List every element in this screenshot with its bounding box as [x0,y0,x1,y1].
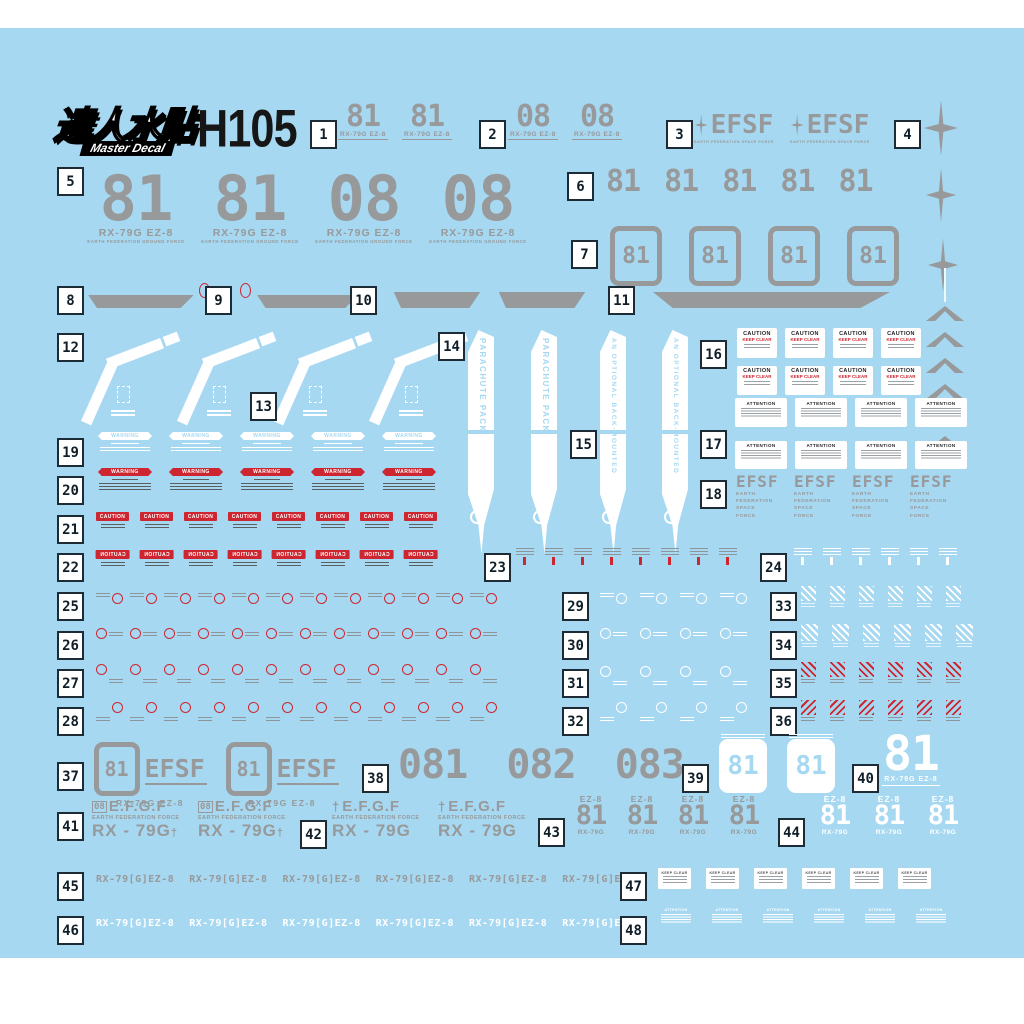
cross-icon: † [332,799,339,814]
detail-line [921,450,961,451]
section-34-decals [800,624,973,644]
circle-callout [96,588,126,604]
caution-card: CAUTION KEEP CLEAR [881,366,921,396]
decal-number: 81 [928,804,959,829]
section-25-decals [96,588,500,604]
detail-line [347,679,361,680]
brand-english: Master Decal [79,141,175,156]
circle-marker-icon [334,664,345,675]
attention-card: ATTENTION [915,441,967,470]
caution-card: CAUTION KEEP CLEAR [833,366,873,396]
efsf-line: EARTH [910,491,930,498]
section-23-decals [514,548,738,565]
circle-callout [436,628,466,639]
micro-label-red-tick [572,548,593,565]
decal-ez8-81: EZ-8 81 RX-79G [723,794,765,836]
attention-title: ATTENTION [818,908,841,912]
section-42-number: 42 [300,820,327,849]
circle-callout [402,588,432,604]
detail-line [888,381,914,382]
decal-number: 81 [410,103,444,131]
section-24-number: 24 [760,553,787,582]
section-16-number: 16 [700,340,727,369]
rx79g-text: RX - 79G [92,821,171,840]
detail-line [177,679,191,680]
detail-line [861,408,901,409]
section-1-number: 1 [310,120,337,149]
trapezoid-stripe [648,292,895,308]
detail-line [921,408,961,409]
rx79g-text: RX-79G [822,829,848,836]
circle-callout-white [680,666,712,687]
detail-line [177,361,214,426]
detail-line [721,734,765,735]
caution-tag-mirrored: CAUTION [272,550,305,563]
section-32-number: 32 [562,707,589,736]
detail-line [182,443,210,444]
circle-callout [334,628,364,639]
section-21-decals: CAUTION CAUTION CAUTION CAUTION CAUTION … [96,512,437,525]
section-18-decals: EFSF EARTH FEDERATION SPACE FORCE EFSF E… [736,472,954,520]
decal-number: 81 [576,804,607,829]
circle-marker-icon [616,593,627,604]
hatch-square-red [829,700,845,718]
decal-81-large: 81 RX-79G EZ-8 EARTH FEDERATION GROUND F… [84,170,188,244]
detail-line [170,483,222,484]
decal-code: RX-79G EZ-8 [510,131,556,138]
section-15-number: 15 [570,430,597,459]
efsf-text: EFSF [910,472,953,491]
hatch-pattern [863,624,880,641]
warning-text: WARNING [253,469,281,475]
section-28-number: 28 [57,707,84,736]
tick-marker [888,557,891,565]
decal-number: 08 [442,170,515,227]
detail-line [409,562,433,563]
circle-callout [164,664,194,685]
decal-number: 81 [780,243,808,269]
hatch-square-red [800,700,816,718]
attention-title: ATTENTION [767,908,790,912]
efgf-text: E.F.G.F [342,798,400,815]
hatch-square-red [887,662,903,680]
circle-callout [300,588,330,604]
detail-line [277,783,339,785]
circle-marker-icon [350,702,361,713]
circle-marker-icon [96,628,107,639]
detail-line [720,717,734,718]
decal-efgf: 08 E.F.G.F EARTH FEDERATION FORCE RX - 7… [198,798,294,841]
keep-clear-text: KEEP CLEAR [901,871,927,875]
micro-label-white-tick [792,548,813,565]
detail-line [183,479,209,480]
section-3-number: 3 [666,120,693,149]
caution-card: CAUTION KEEP CLEAR [881,328,921,358]
decal-efgf-cross: † E.F.G.F EARTH FEDERATION FORCE RX - 79… [332,798,426,841]
detail-line [693,632,707,633]
detail-line [321,524,345,525]
detail-line [720,593,734,594]
keep-clear-text: KEEP CLEAR [839,374,868,379]
micro-label-red-tick [514,548,535,565]
section-11-number: 11 [608,286,635,315]
hatch-pattern [801,624,818,641]
detail-line [109,632,123,633]
tick-marker [523,557,526,565]
warning-text: WARNING [324,433,352,439]
detail-line [910,548,928,549]
detail-line [396,479,422,480]
circle-marker-icon [600,666,611,677]
circle-marker-icon [316,593,327,604]
circle-callout-white [720,628,752,639]
hatch-pattern [859,662,874,677]
detail-line [368,717,382,718]
detail-line [917,603,931,604]
detail-line [759,876,783,877]
detail-line [409,524,433,525]
decal-08-small: 08 RX-79G EZ-8 [572,103,622,140]
decal-efgf-cross: † E.F.G.F EARTH FEDERATION FORCE RX - 79… [438,798,532,841]
detail-line [232,593,246,594]
detail-line [321,562,345,563]
trapezoid-stripe [86,295,196,308]
hatch-square-white [916,586,932,604]
caution-text: CAUTION [272,512,306,521]
detail-line [145,562,169,563]
decal-81-boxed: 81 [226,742,272,796]
decal-number: 81 [346,103,380,131]
detail-line [572,139,622,140]
detail-line [946,717,960,718]
circle-marker-icon [248,593,259,604]
detail-line [470,717,484,718]
caution-tag: CAUTION [272,512,305,525]
detail-line [881,548,899,549]
efsf-line: FEDERATION [910,498,947,505]
circle-callout [164,702,194,723]
circle-marker-icon [436,628,447,639]
section-16-decals: CAUTION KEEP CLEAR CAUTION KEEP CLEAR CA… [737,328,927,395]
detail-line [661,914,691,915]
decal-efsf-logo: EFSF EARTH FEDERATION SPACE FORCE [694,110,774,144]
circle-callout [334,702,364,723]
warning-text: WARNING [395,433,423,439]
hatch-square-white [945,586,961,604]
detail-line [266,593,280,594]
section-4-number: 4 [894,120,921,149]
warning-banner-white: WARNING [380,432,438,448]
hatch-pattern [894,624,911,641]
caution-tag: CAUTION [404,512,437,525]
section-29-decals [600,588,752,604]
circle-marker-icon [384,593,395,604]
detail-line [744,381,770,382]
efsf-line: FEDERATION [852,498,889,505]
circle-marker-icon [470,664,481,675]
circle-marker-icon [240,283,251,298]
warning-banner-red: WARNING [380,468,438,484]
decal-code-text: RX-79[G]EZ-8 [96,918,174,929]
detail-line [957,643,972,644]
efsf-text: EFSF [711,110,774,140]
detail-line [613,632,627,633]
section-8-number: 8 [57,286,84,315]
detail-line [145,524,169,525]
efgf-text: E.F.G.F [109,798,167,815]
circle-callout [130,628,160,639]
decal-81-boxed: 81 [689,226,741,286]
tick-marker [668,557,671,565]
circle-marker-icon [96,664,107,675]
tent-stripe [84,330,176,430]
hatch-pattern [946,700,961,715]
detail-line [436,717,450,718]
back-mounted-strip: AN OPTIONAL BACK-MOUNTED [600,330,626,554]
section-35-number: 35 [770,669,797,698]
detail-line [861,450,901,451]
detail-line [101,524,125,525]
decal-code: RX-79G EZ-8 [327,227,402,239]
warning-banner-white: WARNING [309,432,367,448]
tick-marker [946,557,949,565]
warning-ribbon: WARNING [98,432,152,440]
detail-line [888,603,902,604]
hatch-pattern [946,662,961,677]
decal-81-small: 81 [780,168,814,196]
attention-card: ATTENTION [795,441,847,470]
decal-code: RX - 79G† [198,821,284,841]
decal-81-boxed: 81 [610,226,662,286]
keep-clear-card: KEEP CLEAR [706,868,739,889]
warning-banner-red: WARNING [309,468,367,484]
decal-81-boxed: 81 [94,742,140,796]
circle-callout [96,702,126,723]
detail-line [830,717,844,718]
warning-text: WARNING [395,469,423,475]
micro-label-white-tick [850,548,871,565]
section-35-decals [800,662,961,680]
rx79g-text: RX-79G [629,829,655,836]
micro-label-red-tick [630,548,651,565]
caution-text: CAUTION [404,550,438,559]
caution-tag: CAUTION [228,512,261,525]
section-46-number: 46 [57,916,84,945]
detail-line [789,734,833,735]
section-23-number: 23 [484,553,511,582]
keep-clear-text: KEEP CLEAR [791,374,820,379]
warning-banner-red: WARNING [167,468,225,484]
circle-callout [470,588,500,604]
detail-line [145,783,207,785]
micro-label-white-tick [879,548,900,565]
decal-81-white-box: 81 [718,734,768,793]
section-38-decals: 081 082 083 [398,742,684,788]
decal-number: 08 [516,103,550,131]
section-31-decals [600,666,752,687]
section-36-number: 36 [770,707,797,736]
warning-text: WARNING [111,433,139,439]
circle-marker-icon [486,702,497,713]
decal-efsf-stencil: EFSF EARTH FEDERATION SPACE FORCE [910,472,954,520]
section-39-decals: 81 81 [718,734,836,793]
section-44-decals: EZ-8 81 RX-79G EZ-8 81 RX-79G EZ-8 81 RX… [812,794,966,836]
efsf-text: EFSF [852,472,895,491]
circle-callout [300,702,330,723]
hatch-pattern [888,700,903,715]
circle-marker-icon [720,628,731,639]
detail-line [916,914,946,915]
section-40-number: 40 [852,764,879,793]
circle-marker-icon [418,593,429,604]
section-30-number: 30 [562,631,589,660]
decal-code: RX-79G EZ-8 [99,227,174,239]
decal-number: 81 [104,757,128,781]
circle-marker-icon [112,702,123,713]
detail-line [680,593,694,594]
detail-line [355,332,373,347]
circle-marker-icon [696,702,707,713]
decal-81-boxed: 81 [787,739,835,793]
warning-banner-white: WARNING [238,432,296,448]
detail-line [830,679,844,680]
detail-line [712,914,742,915]
circle-callout-white [640,628,672,639]
decal-caption: EARTH FEDERATION GROUND FORCE [201,239,299,244]
circle-marker-icon [350,593,361,604]
detail-line [313,679,327,680]
strip-label: PARACHUTE PACK [541,338,550,433]
warning-text: WARNING [182,469,210,475]
caution-tag: CAUTION [184,512,217,525]
decal-code: RX-79G EZ-8 [884,776,937,783]
section-34-number: 34 [770,631,797,660]
section-28-decals [96,702,500,723]
decal-number: 81 [820,804,851,829]
circle-marker-icon [736,702,747,713]
detail-line [855,876,879,877]
detail-line [96,593,110,594]
detail-line [143,679,157,680]
section-46-decals: RX-79[G]EZ-8 RX-79[G]EZ-8RX-79[G]EZ-8RX-… [96,918,641,929]
decal-code: RX-79G EZ-8 [340,131,386,138]
section-5-decals: 81 RX-79G EZ-8 EARTH FEDERATION GROUND F… [84,170,530,244]
detail-line [109,679,123,680]
decal-ez8-81: EZ-8 81 RX-79G [570,794,612,836]
decal-number: 81 [729,804,760,829]
bracket-marker [405,386,418,403]
tick-marker [726,557,729,565]
hatch-pattern [888,662,903,677]
detail-line [164,593,178,594]
decal-81-white-box: 81 [786,734,836,793]
detail-line [888,344,914,345]
circle-callout [368,628,398,639]
caution-text: CAUTION [140,550,174,559]
section-13-number: 13 [250,392,277,421]
decal-efsf-stencil: EFSF EARTH FEDERATION SPACE FORCE [736,472,780,520]
tick-marker [697,557,700,565]
detail-line [338,139,388,140]
decal-81-boxed: 81 [847,226,899,286]
detail-line [334,593,348,594]
keep-clear-text: KEEP CLEAR [757,871,783,875]
caution-tag: CAUTION [96,512,129,525]
decal-number: 08 [580,103,614,131]
section-42-decals: † E.F.G.F EARTH FEDERATION FORCE RX - 79… [332,798,532,841]
decal-code-text: RX-79[G]EZ-8 [189,918,267,929]
attention-text-block: ATTENTION [760,908,796,915]
hatch-square-red [945,662,961,680]
detail-line [324,443,352,444]
decal-code: RX - 79G† [92,821,178,841]
attention-title: ATTENTION [746,443,775,448]
efsf-line: EARTH [852,491,872,498]
section-27-number: 27 [57,669,84,698]
hatch-pattern [801,700,816,715]
detail-line [211,632,225,633]
circle-callout [266,628,296,639]
attention-title: ATTENTION [716,908,739,912]
detail-line [680,717,694,718]
tick-marker [610,557,613,565]
circle-callout-white [680,702,712,723]
brand-logo: 達人水貼 Master Decal [51,95,197,156]
detail-line [792,381,818,382]
circle-callout-white [640,666,672,687]
decal-number: 083 [615,742,684,788]
detail-line [939,548,957,549]
section-26-number: 26 [57,631,84,660]
circle-callout [198,628,228,639]
decal-code: RX - 79G [438,821,517,841]
circle-callout [96,628,126,639]
detail-line [130,717,144,718]
circle-marker-icon [146,593,157,604]
circle-callout [402,628,432,639]
keep-clear-card: KEEP CLEAR [850,868,883,889]
hatch-square-white [829,586,845,604]
hatch-pattern [830,586,845,601]
section-29-number: 29 [562,592,589,621]
circle-marker-icon [282,593,293,604]
efsf-text: EFSF [277,754,337,783]
circle-marker-icon [720,666,731,677]
section-38-number: 38 [362,764,389,793]
decal-81-small: 81 [664,168,698,196]
detail-line [661,548,679,549]
decal-number: 81 [622,243,650,269]
detail-line [106,338,164,369]
hatch-square-red [887,700,903,718]
decal-efgf: 08 E.F.G.F EARTH FEDERATION FORCE RX - 7… [92,798,188,841]
warning-ribbon: WARNING [240,468,294,476]
tick-marker [581,557,584,565]
hatch-pattern [859,700,874,715]
section-40-decals: 81 RX-79G EZ-8 [882,732,940,786]
section-1-decals: 81 RX-79G EZ-8 81 RX-79G EZ-8 [338,103,452,140]
detail-line [944,268,946,302]
cross-icon: † [277,827,284,839]
circle-marker-icon [656,702,667,713]
detail-line [613,681,627,682]
caution-text: CAUTION [404,512,438,521]
micro-label-white-tick [821,548,842,565]
efsf-line: FORCE [852,513,872,520]
circle-marker-icon [334,628,345,639]
circle-callout [402,664,432,685]
circle-callout [300,664,330,685]
